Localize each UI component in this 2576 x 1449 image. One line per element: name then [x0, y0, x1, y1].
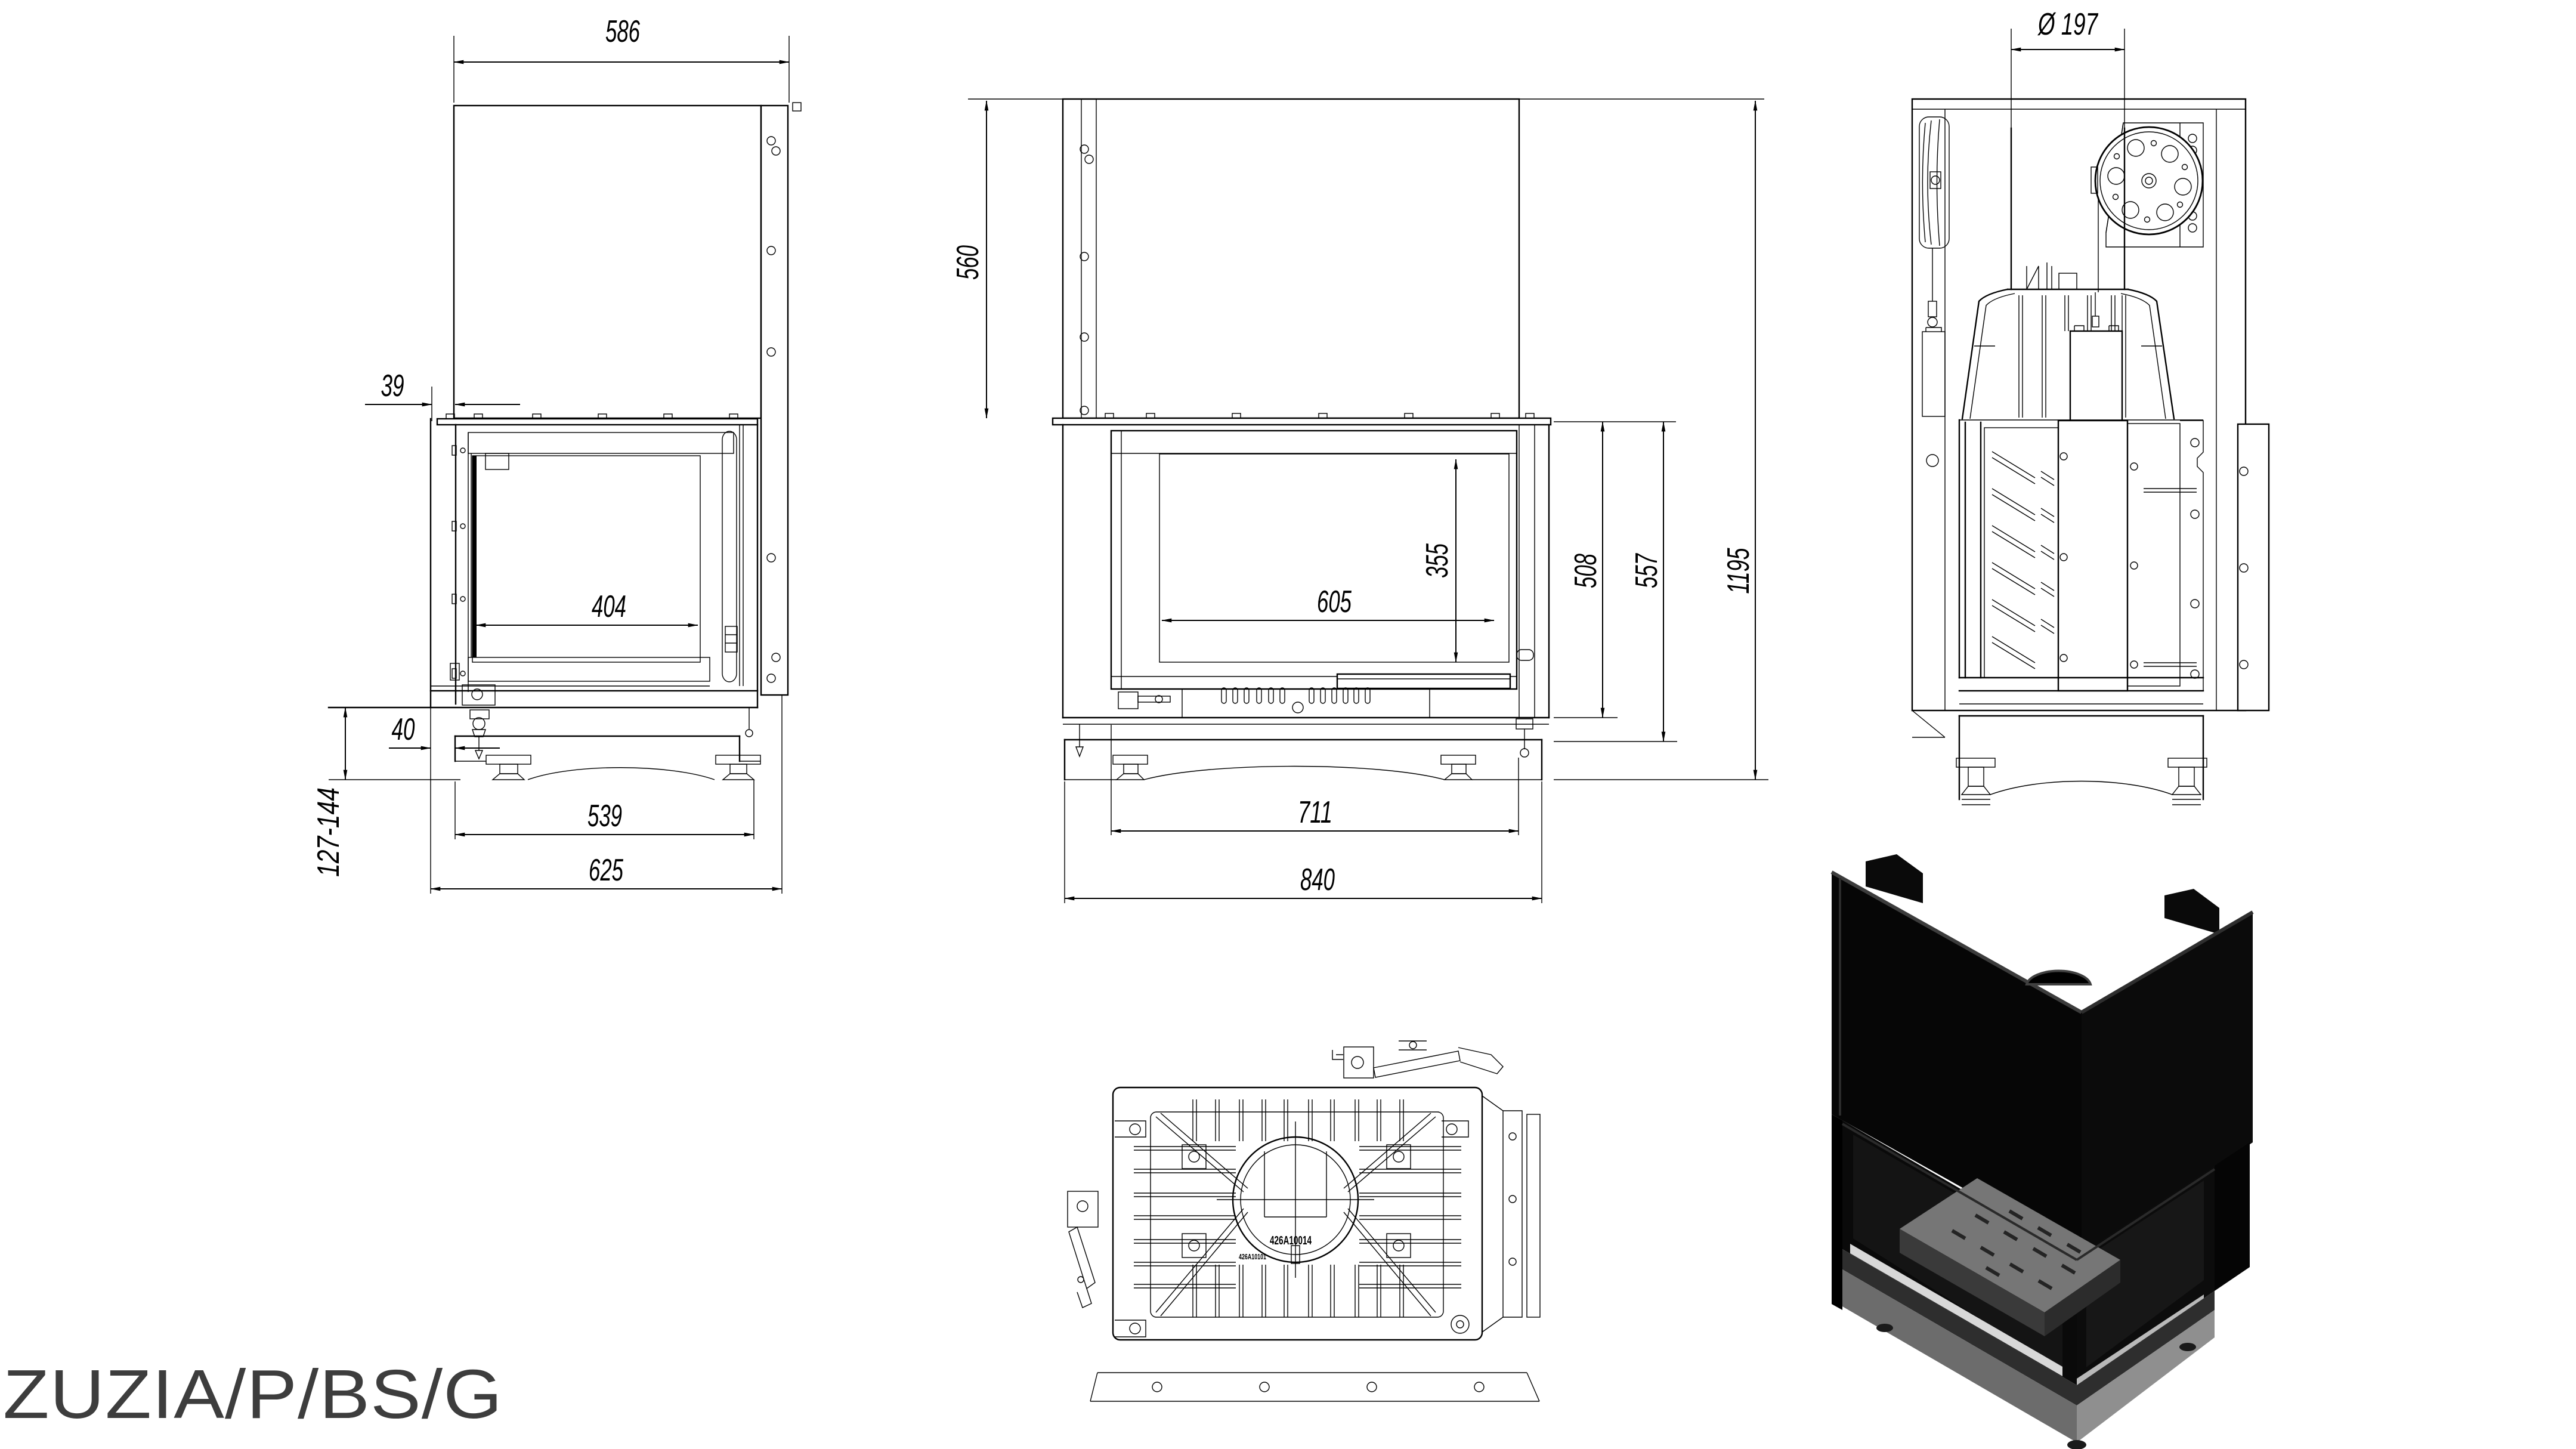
svg-text:ZUZIA/P/BS/G: ZUZIA/P/BS/G — [3, 1355, 503, 1433]
svg-text:605: 605 — [1317, 585, 1352, 619]
svg-text:39: 39 — [381, 369, 404, 403]
svg-text:560: 560 — [951, 245, 985, 280]
svg-text:539: 539 — [587, 799, 622, 833]
svg-text:127-144: 127-144 — [311, 787, 346, 877]
svg-text:404: 404 — [592, 589, 626, 624]
svg-text:711: 711 — [1298, 795, 1332, 830]
svg-text:40: 40 — [392, 712, 415, 747]
svg-text:1195: 1195 — [1721, 548, 1756, 594]
svg-text:840: 840 — [1300, 863, 1335, 897]
svg-text:508: 508 — [1569, 554, 1603, 588]
svg-text:625: 625 — [589, 853, 624, 888]
svg-text:355: 355 — [1420, 543, 1455, 578]
svg-text:426A10101: 426A10101 — [1239, 1252, 1266, 1261]
svg-text:Ø 197: Ø 197 — [2037, 7, 2099, 42]
svg-text:426A10014: 426A10014 — [1270, 1234, 1312, 1247]
svg-text:557: 557 — [1629, 553, 1664, 588]
svg-text:586: 586 — [605, 14, 640, 49]
